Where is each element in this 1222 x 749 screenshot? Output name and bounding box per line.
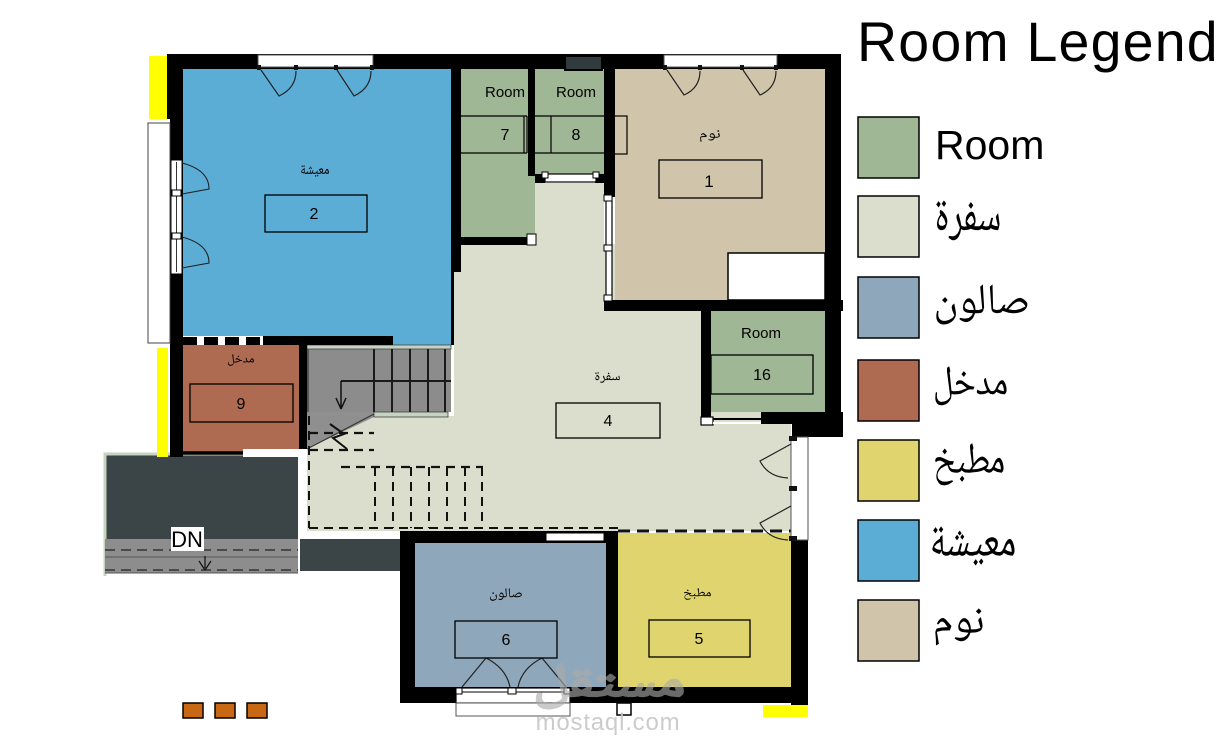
svg-text:9: 9 [237, 396, 246, 413]
svg-text:4: 4 [604, 413, 613, 430]
svg-text:7: 7 [501, 127, 510, 144]
svg-text:Room: Room [485, 84, 525, 101]
svg-text:5: 5 [695, 631, 704, 648]
svg-text:Room: Room [741, 325, 781, 342]
svg-text:2: 2 [310, 206, 319, 223]
svg-text:8: 8 [572, 127, 581, 144]
svg-text:1: 1 [704, 172, 713, 191]
svg-text:16: 16 [753, 367, 771, 384]
svg-text:mostaql.com: mostaql.com [536, 709, 681, 736]
svg-text:Room Legend: Room Legend [857, 11, 1219, 73]
svg-text:6: 6 [502, 632, 511, 649]
svg-text:Room: Room [935, 122, 1044, 168]
svg-text:Room: Room [556, 84, 596, 101]
svg-text:DN: DN [171, 527, 203, 552]
